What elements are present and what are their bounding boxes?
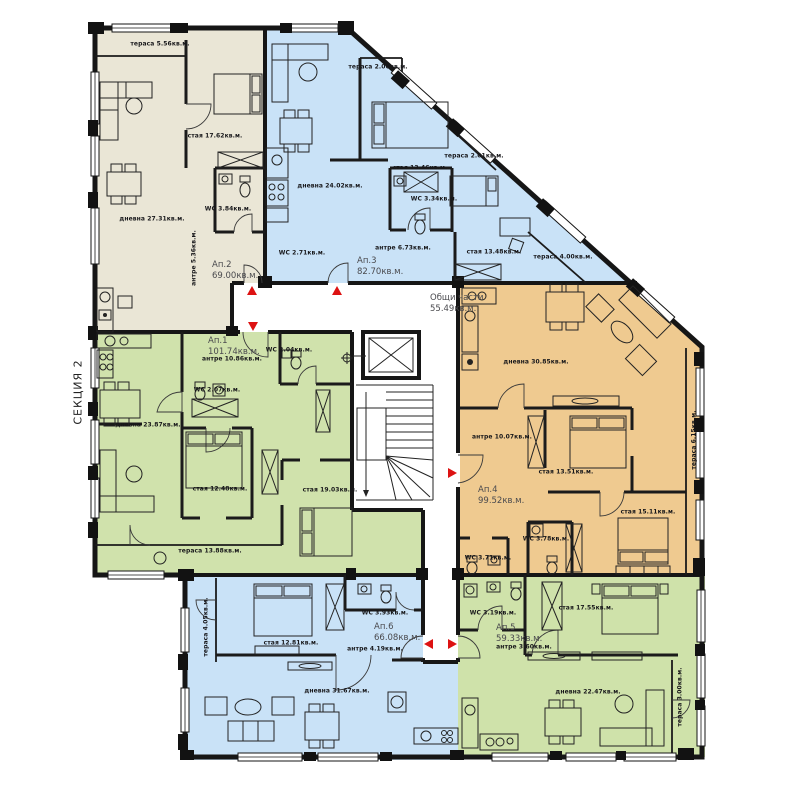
room-label: тераса 13.88кв.м. [178,548,242,555]
apartment-ap5-region[interactable] [458,575,705,757]
room-label: WC 3.84кв.м. [205,206,251,213]
room-label: тераса 3.00кв.м. [677,667,684,726]
section-label: СЕКЦИЯ 2 [72,359,85,424]
common-area-label: Общи части55.49кв.м. [430,293,484,314]
corridor-bottom [423,510,458,662]
floor-plan: СЕКЦИЯ 2 Общи части55.49кв.м. Ап.1101.74… [0,0,800,800]
room-label: антре 4.19кв.м. [347,646,403,653]
room-label: антре 3.60кв.м. [496,644,552,651]
room-label: дневна 27.31кв.м. [119,216,184,223]
room-label: дневна 31.67кв.м. [304,688,369,695]
apartment-ap6-region[interactable] [185,575,460,760]
room-label: дневна 23.87кв.м. [115,422,180,429]
room-label: тераса 4.05кв.м. [203,597,210,656]
apartment-ap4-region[interactable] [460,283,700,575]
room-label: стая 19.03кв.м. [303,487,358,494]
room-label: антре 10.86кв.м. [202,356,262,363]
room-label: WC 3.34кв.м. [411,196,457,203]
room-label: тераса 5.56кв.м. [130,41,189,48]
room-label: WC 2.04кв.м. [266,347,312,354]
room-label: тераса 4.00кв.м. [533,254,592,261]
apartment-label-ap6: Ап.666.08кв.м. [374,622,420,643]
apartment-label-ap3: Ап.382.70кв.м. [357,256,403,277]
apartment-label-ap4: Ап.499.52кв.м. [478,485,524,506]
room-label: дневна 22.47кв.м. [555,689,620,696]
apartment-label-ap1: Ап.1101.74кв.м. [208,336,260,357]
corridor-top [232,283,458,332]
room-label: дневна 24.02кв.м. [297,183,362,190]
room-label: стая 13.46кв.м. [393,165,448,172]
room-label: антре 10.07кв.м. [472,434,532,441]
room-label: WC 3.19кв.м. [470,610,516,617]
room-label: дневна 30.85кв.м. [503,359,568,366]
room-label: стая 13.48кв.м. [467,249,522,256]
room-label: стая 15.11кв.м. [621,509,676,516]
apartment-label-ap2: Ап.269.00кв.м. [212,260,258,281]
room-label: WC 2.07кв.м. [194,387,240,394]
room-label: стая 13.51кв.м. [539,469,594,476]
room-label: антре 5.36кв.м. [191,230,198,286]
room-label: антре 6.73кв.м. [375,245,431,252]
room-label: стая 12.81кв.м. [264,640,319,647]
room-label: стая 12.48кв.м. [193,486,248,493]
room-label: WC 2.71кв.м. [279,250,325,257]
room-label: WC 3.71кв.м. [465,555,511,562]
apartment-label-ap5: Ап.559.33кв.м. [496,623,542,644]
room-label: стая 17.62кв.м. [188,133,243,140]
room-label: стая 17.55кв.м. [559,605,614,612]
room-label: WC 3.93кв.м. [362,610,408,617]
room-label: WC 3.78кв.м. [523,536,569,543]
room-label: тераса 6.15кв.м. [691,410,698,469]
stairwell-area [352,332,458,510]
room-label: тераса 2.01кв.м. [444,153,503,160]
room-label: тераса 2.06кв.м. [348,64,407,71]
